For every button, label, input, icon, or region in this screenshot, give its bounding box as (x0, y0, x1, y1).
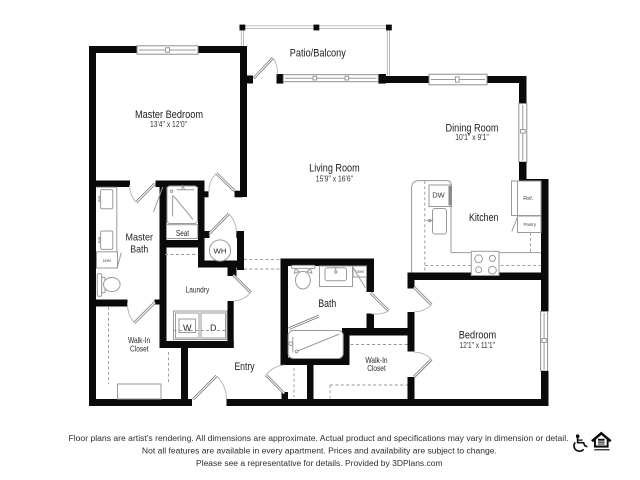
svg-text:Patio/Balcony: Patio/Balcony (290, 48, 346, 60)
svg-text:12'1" x 11'1": 12'1" x 11'1" (459, 341, 495, 350)
svg-text:Closet: Closet (367, 364, 386, 373)
svg-text:Not all features are available: Not all features are available in every … (142, 446, 497, 455)
svg-text:13'4" x 12'0": 13'4" x 12'0" (150, 120, 187, 129)
svg-text:Entry: Entry (234, 361, 254, 373)
svg-text:WH: WH (214, 246, 227, 255)
svg-text:Linen: Linen (103, 258, 112, 263)
svg-text:Laundry: Laundry (186, 286, 210, 295)
svg-text:15'9" x 16'6": 15'9" x 16'6" (316, 175, 353, 184)
svg-text:Floor plans are artist's rende: Floor plans are artist's rendering. All … (69, 434, 569, 443)
svg-text:Living Room: Living Room (309, 163, 360, 175)
svg-text:Bath: Bath (130, 243, 148, 255)
svg-text:Master: Master (126, 232, 154, 244)
svg-text:Bath: Bath (318, 298, 336, 310)
svg-text:Please see a representative fo: Please see a representative for details.… (196, 459, 443, 468)
svg-text:W: W (183, 323, 192, 333)
svg-text:DW: DW (432, 193, 445, 200)
svg-text:10'1" x 9'1": 10'1" x 9'1" (455, 133, 489, 142)
svg-text:Kitchen: Kitchen (469, 212, 499, 224)
svg-text:Seat: Seat (176, 228, 189, 238)
svg-text:Closet: Closet (130, 345, 149, 354)
svg-text:Pantry: Pantry (524, 222, 537, 227)
svg-text:Ref.: Ref. (523, 196, 533, 202)
svg-text:Bedroom: Bedroom (459, 330, 497, 342)
svg-text:D: D (210, 323, 217, 333)
